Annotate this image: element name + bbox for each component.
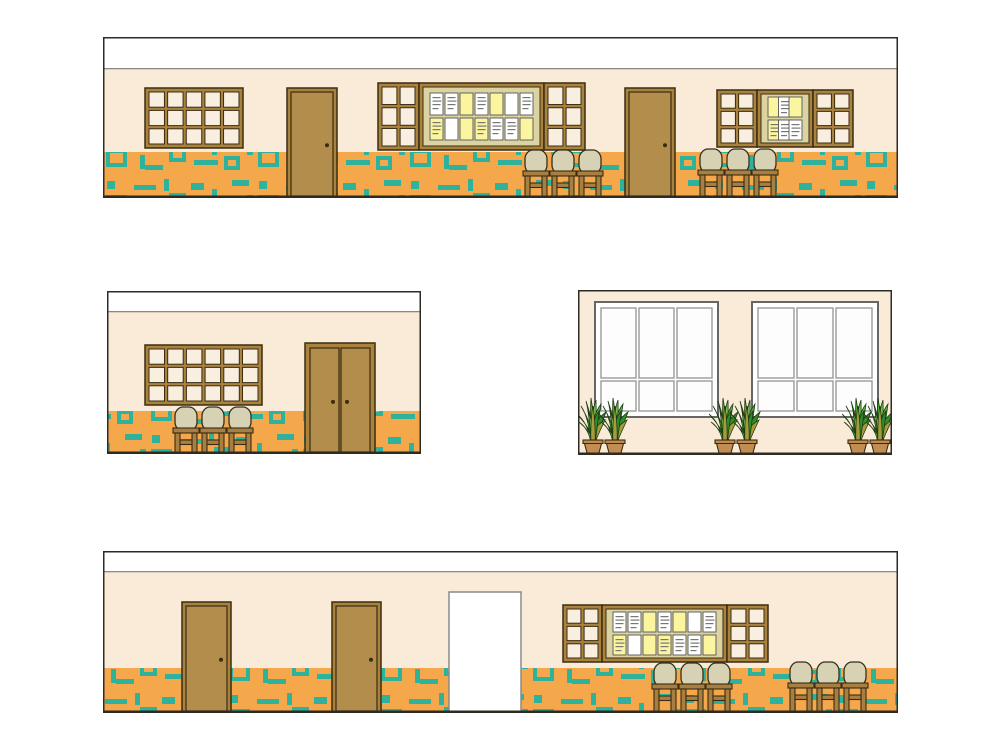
window-pane [835,94,849,108]
pinned-paper [460,118,473,140]
door-knob [219,658,223,662]
window-grid [563,605,602,662]
pot [739,444,756,454]
notice-board [419,83,544,150]
window-pane [601,308,636,378]
window-pane [797,308,833,378]
elevation-top [103,37,898,198]
doorway-opening [449,592,521,713]
pot [607,444,624,454]
pot [717,444,734,454]
pot [585,444,602,454]
window-pane [382,87,397,105]
window-pane [639,308,674,378]
pinned-paper [703,612,716,632]
window-pane [224,386,240,401]
window-pane [205,349,221,364]
pinned-paper [688,612,701,632]
window-pane [168,110,183,125]
pinned-paper [643,612,656,632]
window-pane [567,626,581,640]
window-pane [584,626,598,640]
window-pane [817,111,831,125]
pinned-paper [688,635,701,655]
window-pane [749,644,764,658]
window-pane [749,609,764,623]
wainscot [103,152,898,198]
window-pane [584,644,598,658]
notice-board [757,90,813,147]
door-knob [663,143,667,147]
pinned-paper [658,612,671,632]
pot [850,444,867,454]
window-grid [145,345,262,405]
window-pane [205,386,221,401]
window-grid [727,605,768,662]
window-pane [677,381,712,411]
window-pane [168,92,183,107]
window-pane [566,128,581,146]
elevation-mid-right [578,290,892,455]
notice-board [602,605,727,662]
window-pane [186,110,201,125]
pinned-paper [643,635,656,655]
window-grid [145,88,243,148]
window-pane [739,111,753,125]
window-pane [382,108,397,126]
window-pane [149,386,165,401]
window-pane [739,129,753,143]
pinned-paper [445,118,458,140]
pinned-paper [613,635,626,655]
window-pane [758,381,794,411]
window-pane [721,94,735,108]
window-pane [400,128,415,146]
window-pane [835,111,849,125]
window-pane [817,129,831,143]
door-knob [325,143,329,147]
pinned-paper [460,93,473,115]
window-pane [836,308,872,378]
window-pane [186,367,202,382]
window-pane [205,92,220,107]
window-pane [731,609,746,623]
pinned-paper [490,93,503,115]
window-pane [758,308,794,378]
window-pane [205,110,220,125]
window-pane [149,367,165,382]
window-pane [168,349,184,364]
window-pane [186,386,202,401]
window-pane [400,108,415,126]
door-slab [341,348,370,452]
window-pane [400,87,415,105]
window-grid [544,83,585,150]
window-pane [224,129,239,144]
door [287,88,337,198]
door [182,602,231,713]
door-knob [369,658,373,662]
window-pane [731,644,746,658]
door-knob [345,400,349,404]
window-pane [149,92,164,107]
window-pane [224,367,240,382]
window-grid [717,90,757,147]
window-pane [731,626,746,640]
window-pane [168,129,183,144]
pinned-paper [613,612,626,632]
window-pane [224,110,239,125]
window-pane [168,367,184,382]
door-slab [310,348,339,452]
window-pane [548,108,563,126]
pinned-paper [505,93,518,115]
window-pane [567,609,581,623]
ceiling-band [103,551,898,572]
window-grid [813,90,853,147]
elevation-sheet [0,0,1000,745]
window-pane [639,381,674,411]
window-pane [382,128,397,146]
window-pane [186,349,202,364]
elevation-mid-left [107,291,421,454]
window-pane [224,92,239,107]
elevation-bottom [103,551,898,713]
door-knob [331,400,335,404]
ceiling-band [107,291,421,312]
window-pane [566,87,581,105]
pinned-paper [628,612,641,632]
window-pane [721,111,735,125]
window-pane [243,367,259,382]
window-grid [378,83,419,150]
window-pane [149,110,164,125]
pinned-paper [658,635,671,655]
window-pane [817,94,831,108]
pinned-paper [703,635,716,655]
window-pane [797,381,833,411]
window-pane [186,92,201,107]
window-pane [567,644,581,658]
double-door [305,343,375,454]
pinned-paper [673,635,686,655]
pinned-paper [673,612,686,632]
window-pane [243,349,259,364]
window-pane [149,129,164,144]
pinned-paper [789,97,802,117]
door [332,602,381,713]
window-pane [548,87,563,105]
window-pane [243,386,259,401]
window-pane [835,129,849,143]
window-pane [205,129,220,144]
window-pane [205,367,221,382]
window-pane [566,108,581,126]
window-pane [168,386,184,401]
window-pane [836,381,872,411]
window-pane [721,129,735,143]
window-pane [739,94,753,108]
ceiling-band [103,37,898,69]
pinned-paper [789,120,802,140]
window-pane [677,308,712,378]
window-pane [584,609,598,623]
window-pane [149,349,165,364]
window-pane [224,349,240,364]
pot [872,444,889,454]
large-window [752,302,878,417]
pinned-paper [628,635,641,655]
door [625,88,675,198]
window-pane [186,129,201,144]
window-pane [548,128,563,146]
window-pane [749,626,764,640]
pinned-paper [520,118,533,140]
